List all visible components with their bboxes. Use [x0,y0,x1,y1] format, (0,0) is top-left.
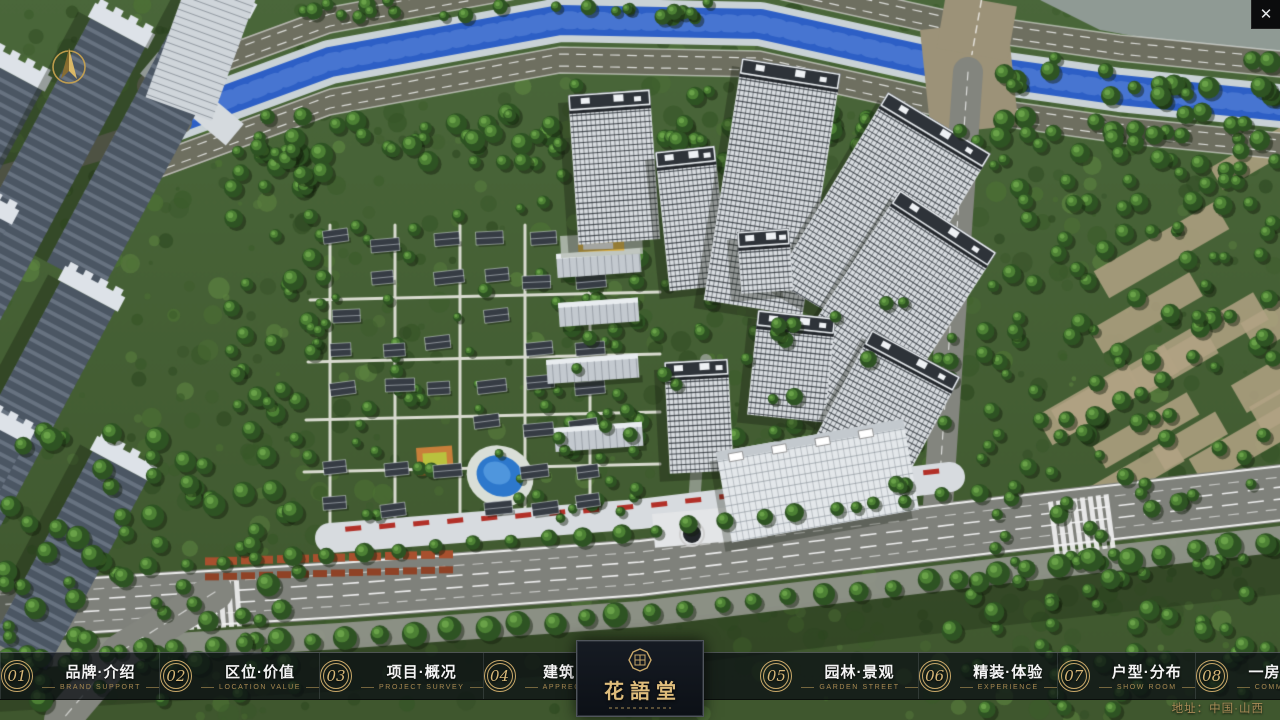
nav-label: 户型·分布 [1112,661,1182,682]
masterplan-screen: ✕ 01 品牌·介绍 BRAND SUPPORT 02 区位·价值 LOCATI… [0,0,1280,720]
nav-item-landscape[interactable]: 05 园林·景观 GARDEN STREET [760,653,918,699]
nav-sublabel: LOCATION VALUE [201,684,319,691]
nav-sublabel: PROJECT SURVEY [361,684,483,691]
nav-sublabel: COMMUNITY [1237,684,1280,691]
brand-title: 花語堂 [604,675,682,704]
project-address: 地址：中国·山西 [1172,700,1264,716]
masterplan-3d-view[interactable] [0,0,1280,720]
brand-subline-decor [609,707,671,709]
nav-number-badge: 06 [919,660,951,692]
nav-label: 园林·景观 [825,661,895,682]
nav-sublabel: SHOW ROOM [1099,684,1195,691]
nav-sublabel: EXPERIENCE [960,684,1057,691]
nav-number-badge: 01 [1,660,33,692]
nav-label: 品牌·介绍 [65,661,135,682]
nav-item-scene[interactable]: 08 一房·一景 COMMUNITY [1196,653,1280,699]
nav-label: 项目·概况 [387,661,457,682]
nav-number-badge: 04 [484,660,516,692]
nav-item-location[interactable]: 02 区位·价值 LOCATION VALUE [160,653,320,699]
nav-number-badge: 05 [760,660,792,692]
nav-sublabel: BRAND SUPPORT [42,684,159,691]
nav-label: 精装·体验 [973,661,1043,682]
nav-number-badge: 07 [1058,660,1090,692]
nav-number-badge: 02 [160,660,192,692]
close-button[interactable]: ✕ [1251,0,1280,29]
nav-item-project[interactable]: 03 项目·概况 PROJECT SURVEY [320,653,484,699]
nav-label: 一房·一景 [1249,661,1280,682]
nav-sublabel: GARDEN STREET [801,684,917,691]
nav-number-badge: 08 [1196,660,1228,692]
brand-logo-panel[interactable]: 花語堂 [576,640,704,717]
nav-item-floorplan[interactable]: 07 户型·分布 SHOW ROOM [1058,653,1196,699]
compass-north-icon [46,44,92,90]
nav-item-interior[interactable]: 06 精装·体验 EXPERIENCE [919,653,1058,699]
nav-item-brand[interactable]: 01 品牌·介绍 BRAND SUPPORT [0,653,160,699]
nav-label: 区位·价值 [225,661,295,682]
nav-number-badge: 03 [320,660,352,692]
brand-seal-icon [628,648,652,672]
